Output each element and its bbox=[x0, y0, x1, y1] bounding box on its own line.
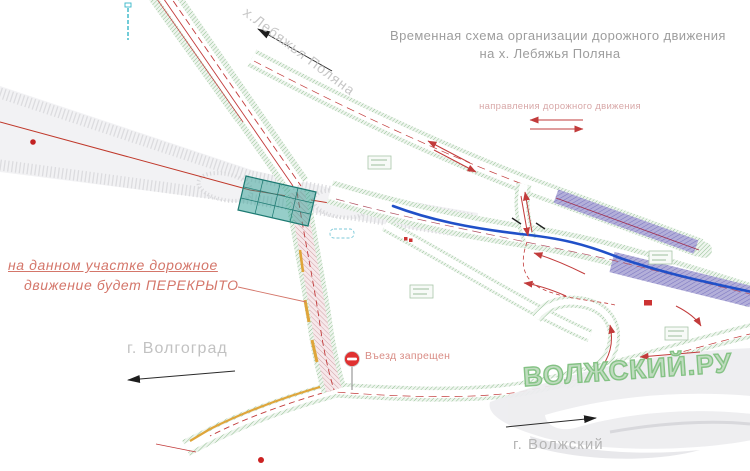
title-line-1: Временная схема организации дорожного дв… bbox=[390, 27, 710, 45]
southwest-road bbox=[156, 383, 334, 463]
label-volgograd: г. Волгоград bbox=[127, 340, 228, 358]
page-title: Временная схема организации дорожного дв… bbox=[390, 27, 710, 63]
info-plate bbox=[649, 251, 672, 264]
info-plate bbox=[410, 285, 433, 298]
label-volzhsky: г. Волжский bbox=[513, 436, 604, 453]
info-plate bbox=[665, 327, 688, 340]
traffic-scheme-page: Временная схема организации дорожного дв… bbox=[0, 0, 750, 471]
road-end-marker bbox=[258, 457, 264, 463]
legend-label: направления дорожного движения bbox=[460, 101, 660, 112]
closure-note-line-2: движение будет ПЕРЕКРЫТО bbox=[8, 275, 239, 295]
closure-note-line-1: на данном участке дорожное bbox=[8, 255, 239, 275]
volgograd-arrow bbox=[128, 371, 235, 380]
info-plate bbox=[368, 156, 391, 169]
road-scheme-drawing bbox=[0, 0, 750, 471]
title-line-2: на х. Лебяжья Поляна bbox=[390, 45, 710, 63]
no-entry-label: Въезд запрещен bbox=[365, 350, 450, 362]
closure-note: на данном участке дорожное движение буде… bbox=[8, 255, 239, 296]
legend-arrows bbox=[530, 120, 583, 129]
note-leader-line bbox=[238, 287, 306, 302]
